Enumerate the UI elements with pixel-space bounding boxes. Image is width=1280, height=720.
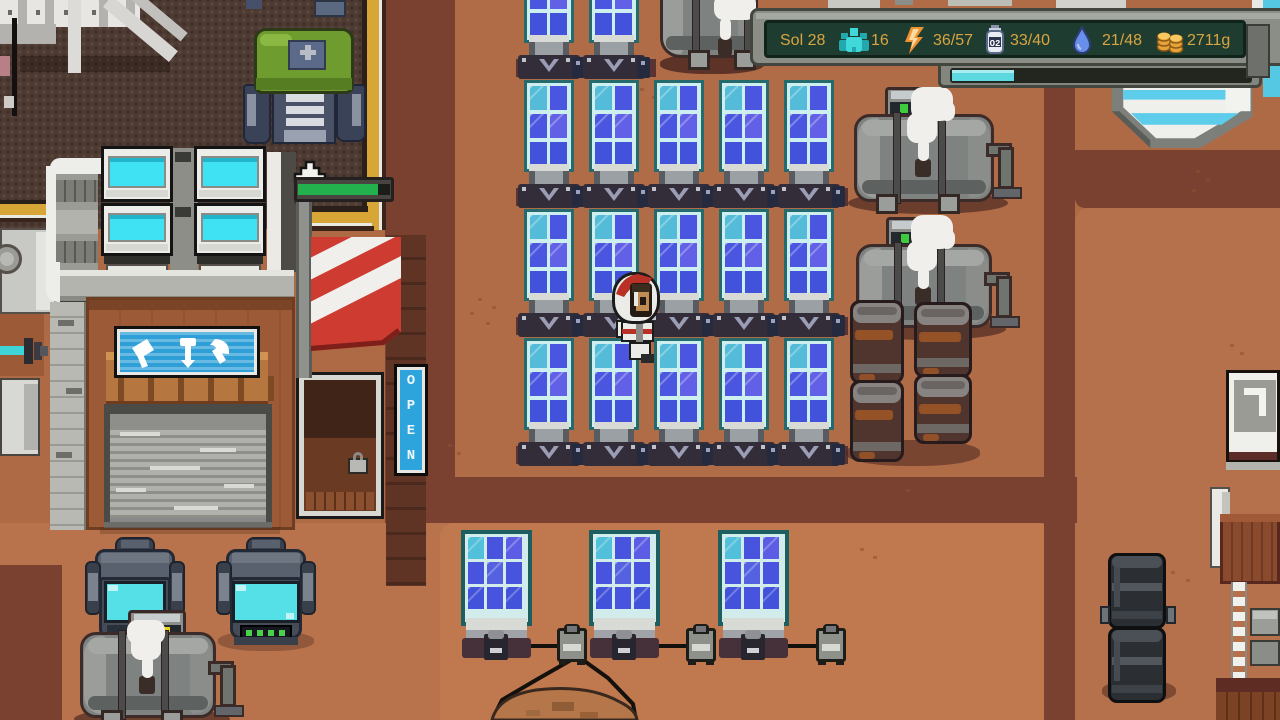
svg-text:O2: O2 <box>990 39 1001 49</box>
